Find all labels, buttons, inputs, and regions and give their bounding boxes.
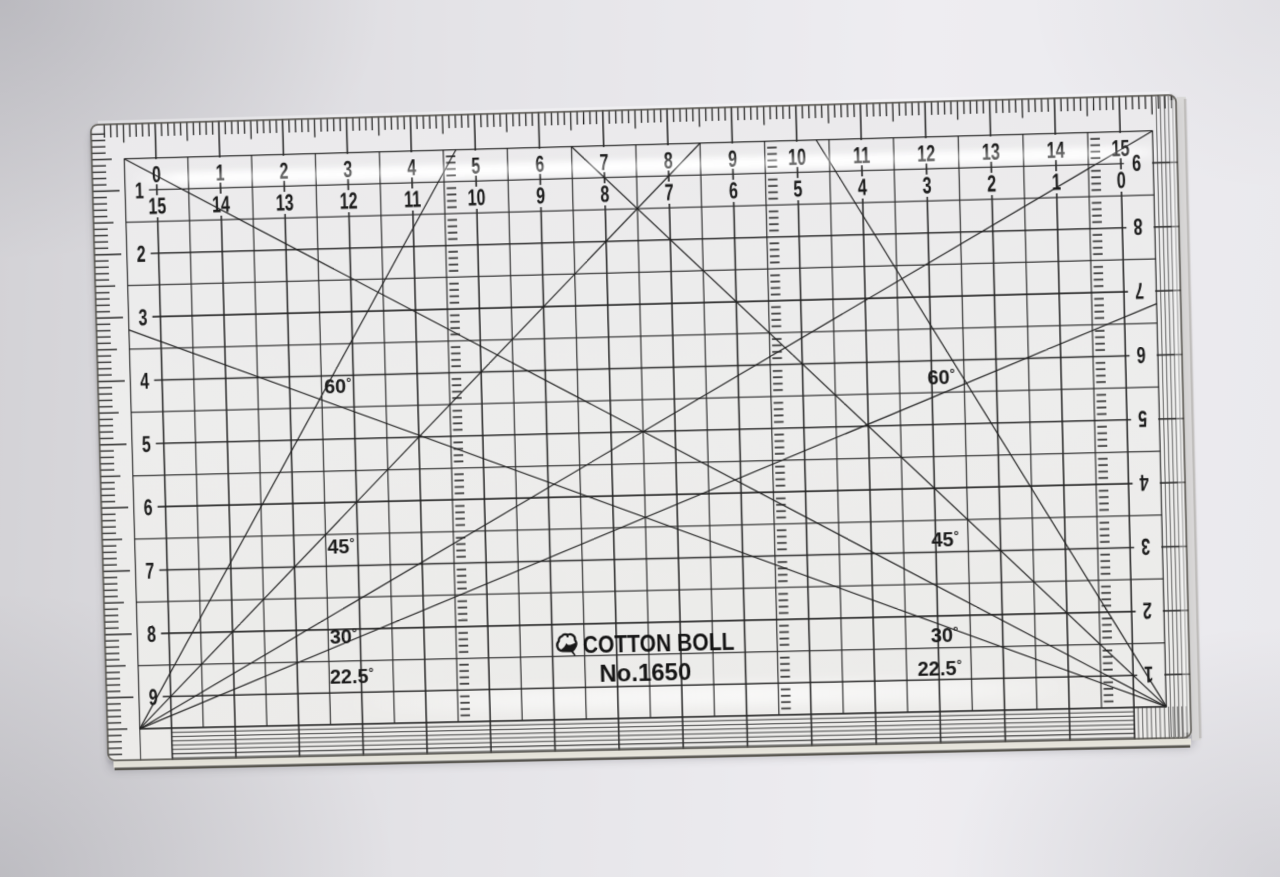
svg-text:7: 7 bbox=[1135, 277, 1145, 303]
svg-text:1: 1 bbox=[135, 179, 145, 205]
svg-text:2: 2 bbox=[136, 242, 146, 268]
svg-text:7: 7 bbox=[664, 180, 674, 206]
svg-text:30°: 30° bbox=[930, 624, 958, 648]
svg-text:8: 8 bbox=[147, 622, 157, 648]
svg-text:60°: 60° bbox=[324, 375, 352, 399]
svg-text:COTTON BOLL: COTTON BOLL bbox=[582, 628, 735, 658]
svg-text:22.5°: 22.5° bbox=[330, 665, 374, 689]
svg-text:45°: 45° bbox=[327, 535, 355, 559]
svg-text:5: 5 bbox=[142, 432, 152, 458]
svg-text:60°: 60° bbox=[927, 366, 955, 390]
svg-text:5: 5 bbox=[1138, 405, 1148, 431]
svg-text:4: 4 bbox=[1139, 469, 1149, 495]
svg-text:8: 8 bbox=[1133, 213, 1143, 239]
svg-text:2: 2 bbox=[987, 171, 997, 197]
svg-text:7: 7 bbox=[145, 559, 155, 585]
svg-text:3: 3 bbox=[1141, 533, 1151, 559]
svg-text:5: 5 bbox=[793, 177, 803, 203]
svg-text:6: 6 bbox=[143, 495, 153, 521]
svg-text:4: 4 bbox=[858, 175, 868, 201]
svg-text:12: 12 bbox=[339, 189, 357, 215]
svg-text:8: 8 bbox=[600, 182, 610, 208]
svg-text:15: 15 bbox=[148, 194, 166, 220]
svg-text:10: 10 bbox=[467, 185, 486, 211]
svg-text:45°: 45° bbox=[931, 528, 959, 552]
svg-text:No.1650: No.1650 bbox=[599, 659, 692, 688]
svg-text:9: 9 bbox=[536, 184, 546, 210]
svg-text:6: 6 bbox=[1136, 341, 1146, 367]
svg-text:13: 13 bbox=[276, 190, 294, 216]
svg-text:2: 2 bbox=[1142, 597, 1152, 623]
svg-text:0: 0 bbox=[1116, 168, 1126, 194]
svg-text:14: 14 bbox=[212, 192, 230, 218]
svg-text:11: 11 bbox=[404, 187, 422, 213]
svg-text:3: 3 bbox=[922, 173, 932, 199]
svg-text:3: 3 bbox=[138, 305, 148, 331]
svg-text:22.5°: 22.5° bbox=[917, 657, 962, 681]
svg-text:6: 6 bbox=[729, 178, 739, 204]
svg-text:4: 4 bbox=[140, 369, 150, 395]
svg-text:1: 1 bbox=[1052, 170, 1062, 196]
svg-text:30°: 30° bbox=[330, 625, 358, 649]
